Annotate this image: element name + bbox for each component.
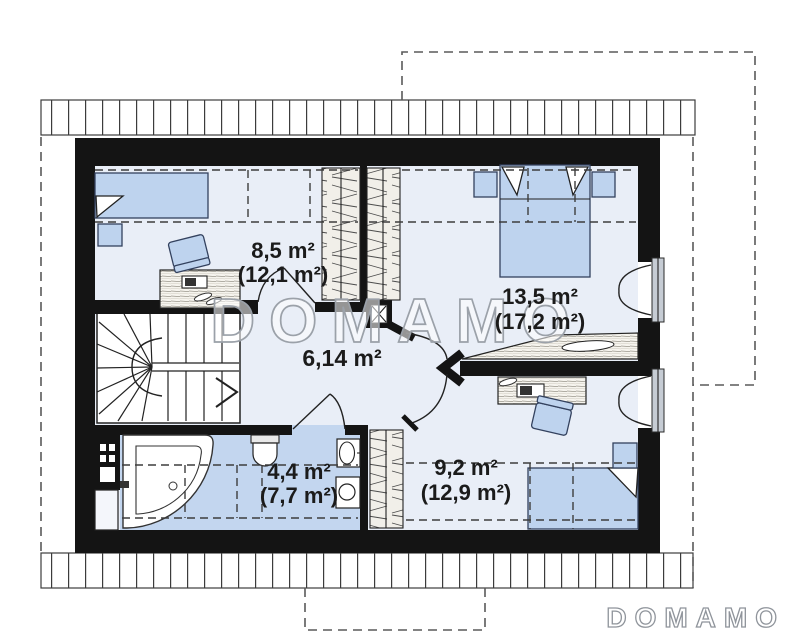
duct-shaft-block — [95, 430, 120, 490]
radiator — [95, 490, 118, 530]
laptop-icon — [182, 276, 207, 288]
washing-machine — [336, 477, 360, 508]
bottom-eaves-hatch-strip — [41, 553, 693, 588]
label-bedroom-second-gross: (12,9 m²) — [421, 480, 511, 505]
wall-master-second-divider — [460, 361, 660, 376]
exterior-wall-right-lower — [638, 428, 660, 553]
label-bedroom-small-area: 8,5 m² — [251, 238, 315, 263]
porch-outline-dashed — [305, 588, 485, 630]
washbasin — [337, 439, 361, 467]
label-bathroom-area: 4,4 m² — [267, 459, 331, 484]
laptop-icon — [517, 384, 544, 397]
exterior-wall-bottom — [75, 530, 660, 553]
nightstand — [474, 172, 497, 197]
wardrobe-right — [367, 168, 400, 300]
floor-plan-page: DOMAMO 8,5 m² (12,1 m²) 13,5 m² (17,2 m²… — [0, 0, 800, 636]
label-bedroom-master-area: 13,5 m² — [502, 284, 578, 309]
brand-logo-text: DOMAMO — [606, 602, 785, 633]
wall-bathroom-right — [360, 425, 368, 530]
exterior-wall-right-upper — [638, 138, 660, 262]
floor-plan-canvas: DOMAMO 8,5 m² (12,1 m²) 13,5 m² (17,2 m²… — [0, 0, 800, 636]
bathroom-door-threshold — [292, 425, 345, 435]
nightstand — [98, 224, 122, 246]
nightstand — [613, 443, 637, 468]
label-hall-area: 6,14 m² — [302, 345, 382, 371]
top-eaves-hatch-strip — [41, 100, 695, 135]
wall-bathroom-top-left — [95, 425, 292, 435]
wall-bedrooms-divider — [360, 166, 367, 302]
label-bedroom-small-gross: (12,1 m²) — [238, 262, 328, 287]
label-bedroom-master-gross: (17,2 m²) — [495, 309, 585, 334]
exterior-wall-left — [75, 138, 95, 553]
nightstand — [592, 172, 615, 197]
label-bathroom-gross: (7,7 m²) — [260, 483, 338, 508]
office-chair — [531, 396, 574, 436]
wardrobe-bedroom-second — [370, 430, 403, 528]
label-bedroom-second-area: 9,2 m² — [434, 455, 498, 480]
exterior-wall-top — [75, 138, 660, 166]
